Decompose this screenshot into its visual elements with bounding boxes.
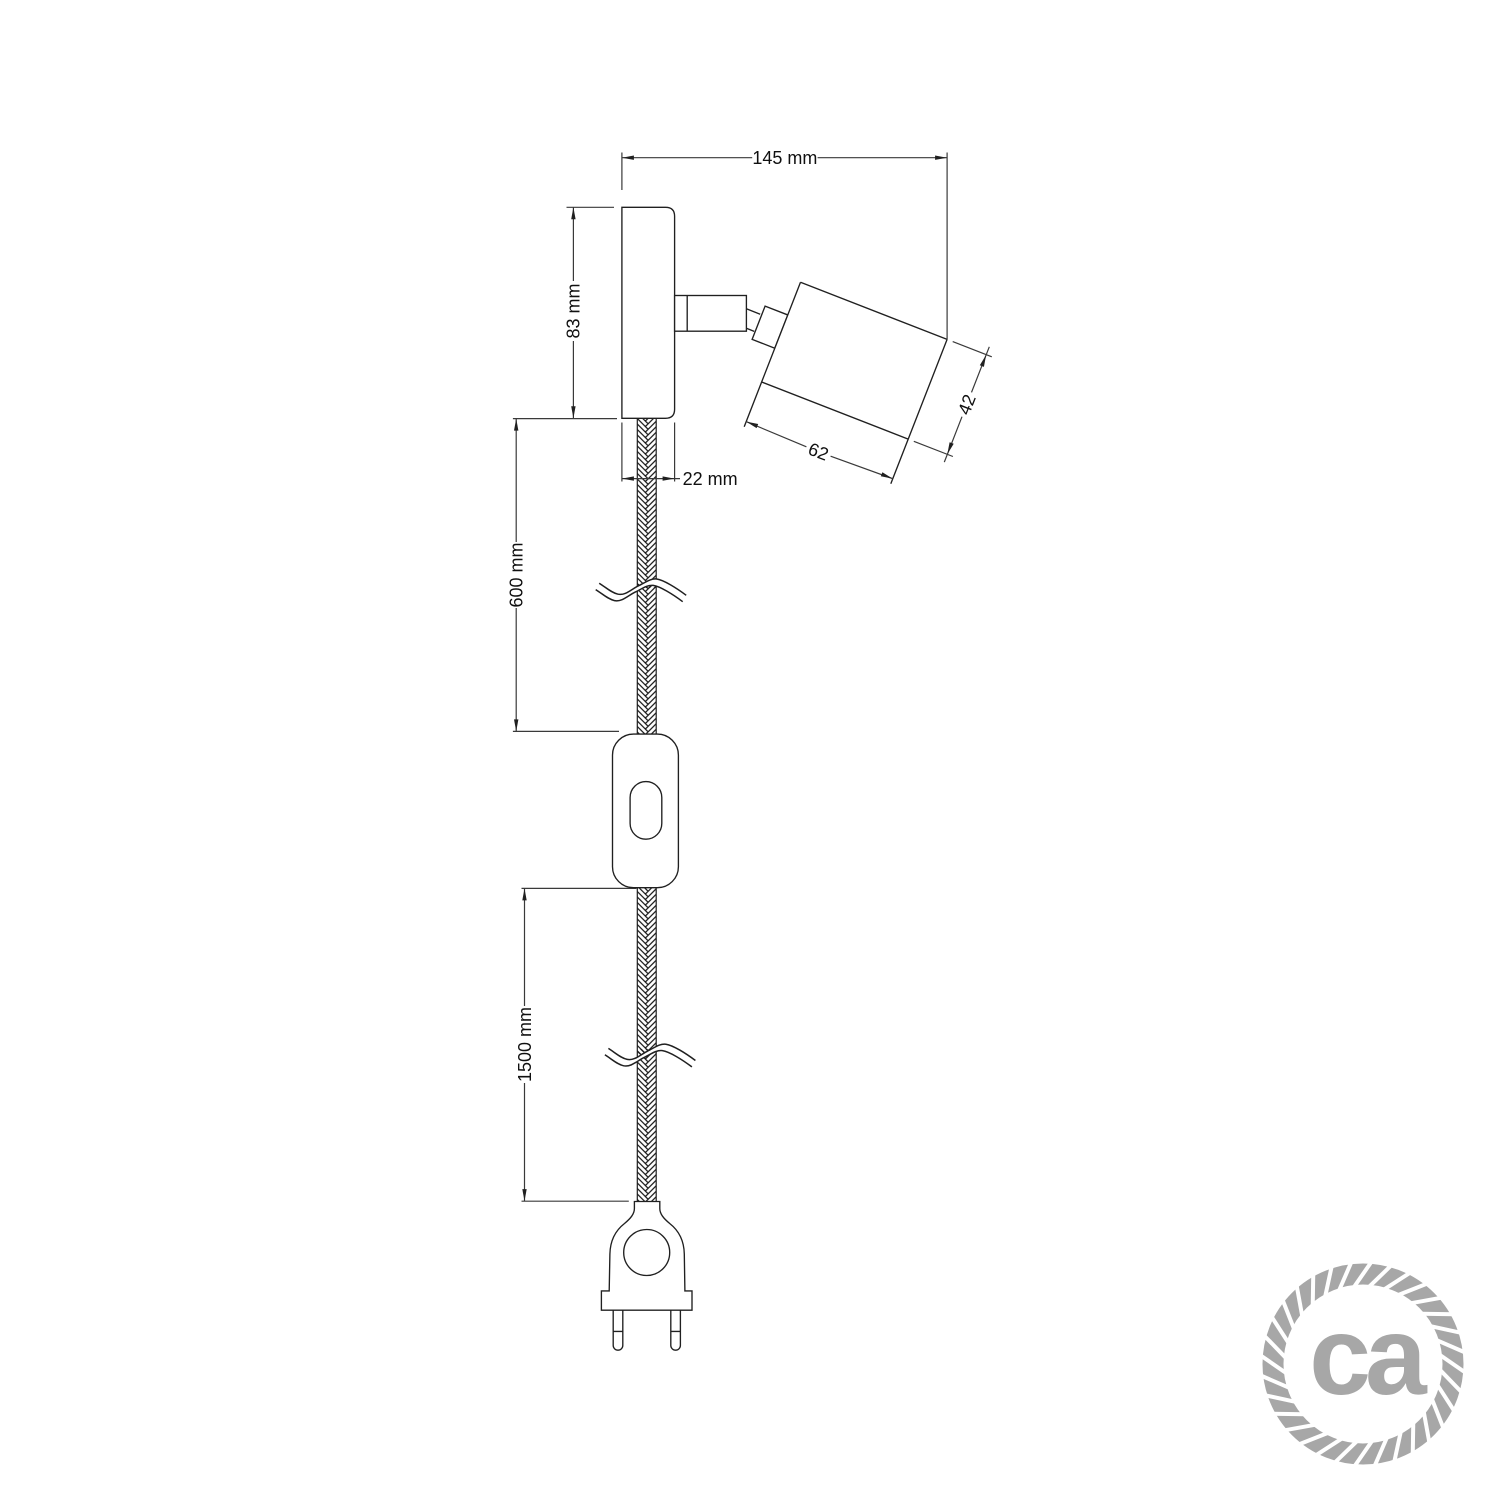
svg-text:600 mm: 600 mm bbox=[507, 542, 527, 607]
svg-text:145 mm: 145 mm bbox=[752, 148, 817, 168]
svg-text:22 mm: 22 mm bbox=[683, 469, 738, 489]
svg-text:ca: ca bbox=[1309, 1294, 1428, 1418]
svg-text:83 mm: 83 mm bbox=[564, 283, 584, 338]
svg-text:1500 mm: 1500 mm bbox=[515, 1007, 535, 1082]
